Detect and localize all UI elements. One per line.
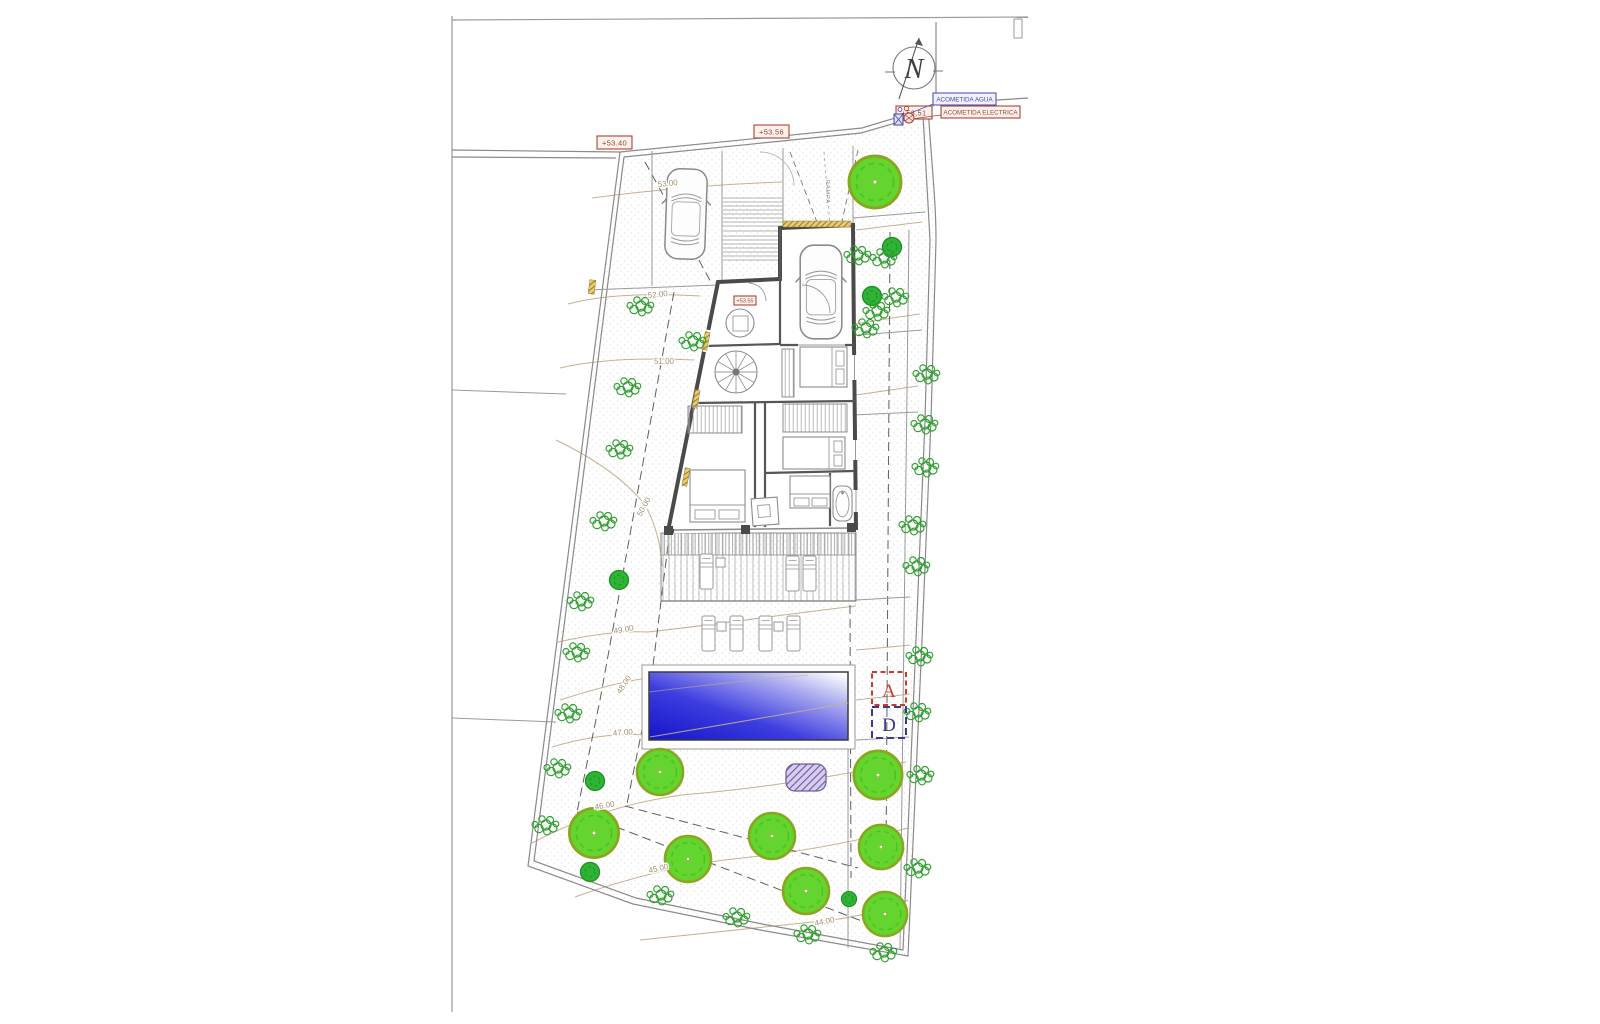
section-marker-d: D xyxy=(882,715,896,736)
contour-label-51: 51.00 xyxy=(654,357,675,366)
tree-icon xyxy=(569,808,618,857)
tree-icon xyxy=(783,868,829,914)
tree-icon xyxy=(665,836,711,882)
site-plan-sheet: RAMPA xyxy=(0,0,1600,1024)
north-arrow: N xyxy=(885,38,943,99)
wardrobe xyxy=(688,406,742,433)
tree-icon xyxy=(849,156,901,208)
utility-pole-marker xyxy=(1014,19,1022,38)
site-plan-drawing: RAMPA xyxy=(0,0,1600,1024)
sun-lounger xyxy=(759,616,772,651)
water-supply-label: ACOMETIDA AGUA xyxy=(936,97,993,104)
electric-supply-label: ACOMETIDA ELECTRICA xyxy=(943,110,1018,117)
street-level-2: +53.56 xyxy=(759,128,784,137)
sun-lounger xyxy=(787,616,800,651)
small-tree-icon xyxy=(610,571,629,590)
small-tree-icon xyxy=(841,891,856,906)
side-table xyxy=(716,558,725,567)
spiral-stair xyxy=(715,351,757,393)
sun-lounger xyxy=(786,556,799,591)
bathtub xyxy=(833,486,852,521)
small-tree-icon xyxy=(581,863,600,882)
small-tree-icon xyxy=(863,287,882,306)
street-level-1: +53.40 xyxy=(602,139,627,148)
garage-lintel xyxy=(783,221,851,227)
ramp-label: RAMPA xyxy=(824,180,830,204)
north-letter: N xyxy=(904,54,925,85)
pool xyxy=(642,665,855,749)
purple-feature-area xyxy=(786,764,826,791)
bed xyxy=(800,347,847,387)
sun-lounger xyxy=(702,616,715,651)
side-table xyxy=(717,622,726,631)
boundary-gate xyxy=(588,280,596,295)
wardrobe xyxy=(782,349,794,397)
tree-icon xyxy=(863,892,907,936)
desk xyxy=(751,497,779,526)
sun-lounger xyxy=(803,556,816,591)
bed xyxy=(790,476,830,508)
tree-icon xyxy=(854,751,902,799)
contour-label-47: 47.00 xyxy=(613,727,634,737)
tree-icon xyxy=(859,825,903,869)
tree-icon xyxy=(637,749,683,795)
side-table xyxy=(774,622,783,631)
entry-table xyxy=(726,309,754,337)
small-tree-icon xyxy=(586,772,605,791)
sun-lounger xyxy=(730,616,743,651)
wardrobe xyxy=(783,404,847,432)
bed xyxy=(690,470,745,522)
swimming-pool xyxy=(649,672,848,740)
section-marker-a: A xyxy=(882,681,896,702)
entry-level-label: +53.55 xyxy=(737,299,754,305)
tree-icon xyxy=(749,813,795,859)
sun-lounger xyxy=(700,554,713,589)
bed xyxy=(783,437,845,469)
